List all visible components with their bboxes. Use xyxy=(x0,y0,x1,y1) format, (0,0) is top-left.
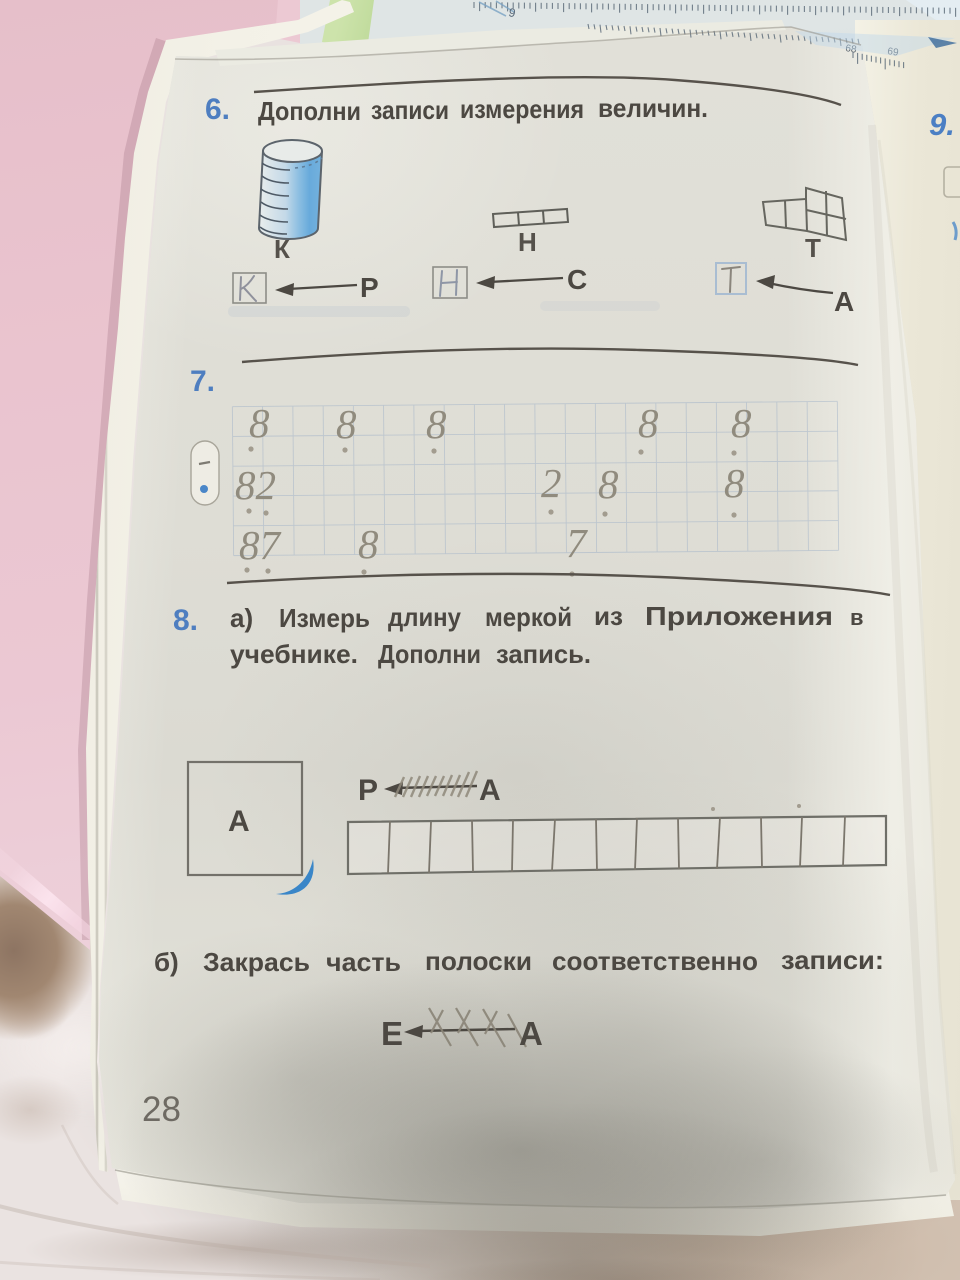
svg-text:6.: 6. xyxy=(205,93,230,126)
svg-text:8: 8 xyxy=(598,461,619,507)
svg-text:7: 7 xyxy=(566,520,588,566)
svg-text:А: А xyxy=(519,1015,543,1052)
svg-text:записи:: записи: xyxy=(781,945,884,975)
svg-text:8: 8 xyxy=(249,400,270,446)
svg-text:из: из xyxy=(594,601,623,631)
svg-text:8.: 8. xyxy=(173,604,198,637)
svg-text:Дополни: Дополни xyxy=(258,96,361,126)
svg-text:Приложения: Приложения xyxy=(645,601,833,631)
svg-text:8: 8 xyxy=(731,400,752,446)
svg-text:9: 9 xyxy=(507,5,517,20)
svg-text:соответственно: соответственно xyxy=(552,946,758,976)
svg-text:измерения: измерения xyxy=(460,94,584,124)
svg-text:2: 2 xyxy=(541,460,562,506)
svg-text:Закрась: Закрась xyxy=(203,947,310,977)
svg-text:Р: Р xyxy=(358,774,378,807)
svg-text:28: 28 xyxy=(142,1090,181,1129)
svg-text:Р: Р xyxy=(360,272,379,303)
svg-text:8: 8 xyxy=(724,460,745,506)
svg-text:учебнике.: учебнике. xyxy=(230,639,358,669)
svg-text:87: 87 xyxy=(239,522,282,568)
svg-text:меркой: меркой xyxy=(485,602,572,632)
svg-text:Н: Н xyxy=(518,227,537,257)
svg-text:запись.: запись. xyxy=(496,639,591,669)
svg-text:величин.: величин. xyxy=(598,93,708,123)
svg-text:8: 8 xyxy=(358,521,379,567)
svg-text:в: в xyxy=(850,605,864,630)
svg-text:А: А xyxy=(834,286,854,317)
svg-text:К: К xyxy=(274,234,290,264)
svg-text:8: 8 xyxy=(336,401,357,447)
svg-text:б): б) xyxy=(154,947,179,977)
svg-text:Т: Т xyxy=(805,233,821,263)
svg-text:А: А xyxy=(228,805,250,838)
svg-text:Измерь: Измерь xyxy=(279,603,370,633)
svg-text:8: 8 xyxy=(638,400,659,446)
svg-text:записи: записи xyxy=(371,95,449,125)
svg-text:часть: часть xyxy=(326,947,401,977)
svg-text:82: 82 xyxy=(235,462,276,508)
svg-text:А: А xyxy=(479,774,501,807)
svg-text:Дополни: Дополни xyxy=(378,639,481,669)
svg-text:8: 8 xyxy=(426,401,447,447)
svg-text:7.: 7. xyxy=(190,365,215,398)
svg-text:а): а) xyxy=(230,603,253,633)
svg-text:длину: длину xyxy=(388,602,461,632)
svg-text:С: С xyxy=(567,264,587,295)
svg-text:9.: 9. xyxy=(929,107,955,142)
svg-text:полоски: полоски xyxy=(425,946,532,976)
svg-text:Е: Е xyxy=(381,1015,403,1052)
